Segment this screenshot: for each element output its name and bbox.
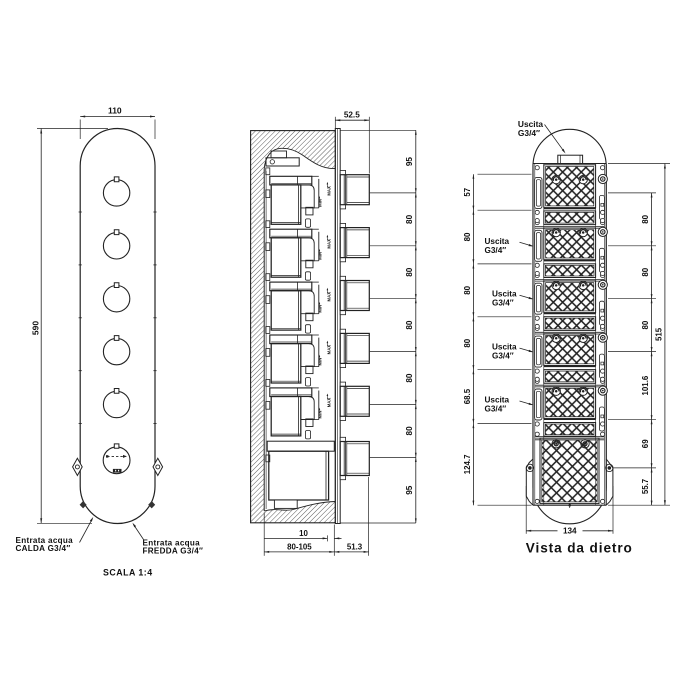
- svg-text:69: 69: [641, 439, 650, 448]
- svg-text:Uscita: Uscita: [492, 290, 517, 299]
- svg-text:80: 80: [463, 232, 472, 241]
- svg-text:80: 80: [463, 338, 472, 347]
- svg-text:51.3: 51.3: [347, 543, 363, 552]
- svg-text:80: 80: [641, 267, 650, 276]
- svg-text:MIN: MIN: [318, 252, 323, 260]
- svg-text:G3/4″: G3/4″: [518, 128, 540, 138]
- svg-text:101.6: 101.6: [641, 375, 650, 395]
- svg-text:68.5: 68.5: [463, 388, 472, 404]
- svg-text:110: 110: [108, 106, 122, 116]
- svg-text:80: 80: [405, 426, 414, 436]
- svg-text:CALDA G3/4″: CALDA G3/4″: [16, 544, 71, 553]
- svg-text:515: 515: [654, 327, 663, 341]
- svg-text:80: 80: [463, 285, 472, 294]
- svg-text:10: 10: [299, 529, 308, 538]
- svg-text:590: 590: [31, 321, 41, 335]
- svg-text:G3/4″: G3/4″: [485, 405, 507, 414]
- svg-text:Uscita: Uscita: [492, 343, 517, 352]
- svg-text:80: 80: [405, 320, 414, 330]
- svg-text:80: 80: [405, 267, 414, 277]
- svg-text:134: 134: [563, 527, 577, 536]
- svg-text:MIN: MIN: [318, 199, 323, 207]
- svg-text:MIN: MIN: [318, 411, 323, 419]
- svg-text:Uscita: Uscita: [485, 396, 510, 405]
- svg-text:G3/4″: G3/4″: [492, 352, 514, 361]
- svg-text:124.7: 124.7: [463, 454, 472, 474]
- svg-text:FREDDA G3/4″: FREDDA G3/4″: [143, 547, 204, 556]
- svg-text:80: 80: [405, 373, 414, 383]
- svg-text:G3/4″: G3/4″: [492, 299, 514, 308]
- svg-text:MIN: MIN: [318, 358, 323, 366]
- svg-text:G3/4″: G3/4″: [485, 246, 507, 255]
- svg-text:55.7: 55.7: [641, 478, 650, 494]
- svg-text:57: 57: [463, 187, 472, 196]
- svg-text:SCALA 1:4: SCALA 1:4: [103, 568, 153, 578]
- svg-text:52.5: 52.5: [344, 111, 360, 120]
- svg-text:80-105: 80-105: [287, 543, 312, 552]
- svg-text:80: 80: [405, 214, 414, 224]
- svg-text:Uscita: Uscita: [485, 237, 510, 246]
- svg-text:95: 95: [405, 157, 414, 167]
- svg-text:95: 95: [405, 485, 414, 495]
- svg-text:MIN: MIN: [318, 305, 323, 313]
- svg-text:80: 80: [641, 320, 650, 329]
- svg-text:80: 80: [641, 214, 650, 223]
- svg-text:Vista da dietro: Vista da dietro: [526, 541, 633, 556]
